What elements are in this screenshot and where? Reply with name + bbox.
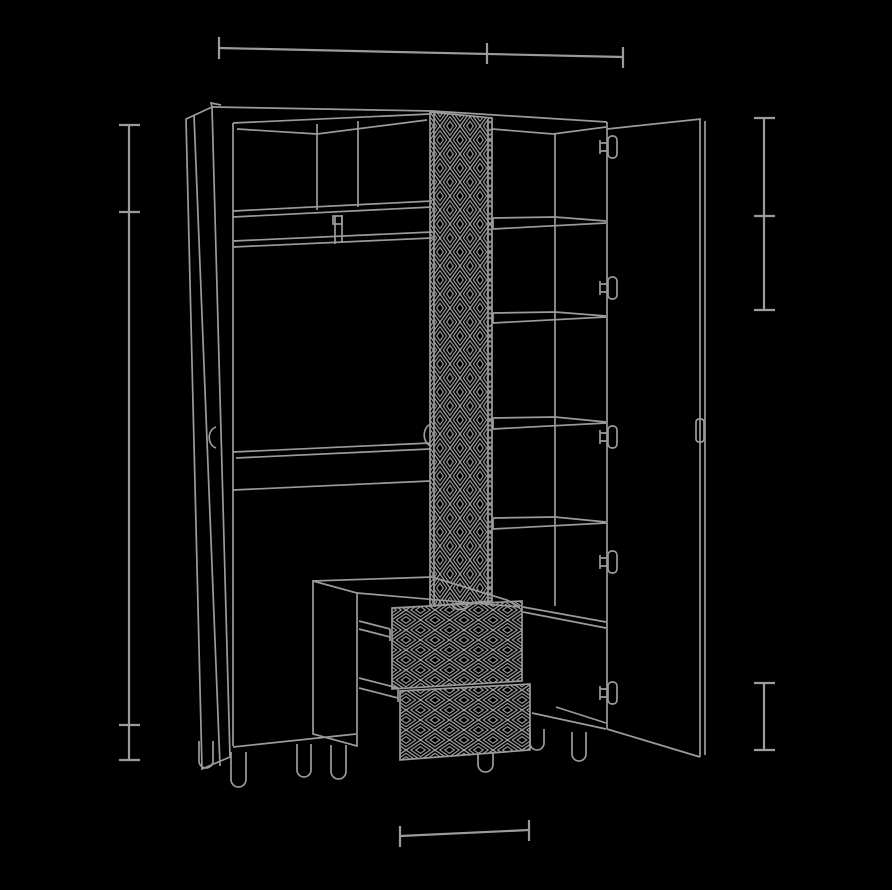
wardrobe [186,103,705,787]
shelf-3 [493,417,606,429]
leg [478,753,493,772]
hinge-5 [600,682,617,704]
back-panel-seam [233,481,430,490]
top-width-dimension [219,37,623,68]
right-upper-height-dimension [754,118,775,310]
hinge-4 [600,551,617,573]
leg [231,752,246,787]
left-door-handle [209,427,216,448]
bottom-drawer-width-dimension [400,820,529,847]
left-door-closed [186,103,230,769]
left-height-dimension [119,125,140,760]
right-door-open [600,119,705,757]
wardrobe-technical-drawing [0,0,892,890]
top-drawer-front [392,601,522,689]
hinge-1 [600,136,617,158]
shelf-4 [493,517,606,529]
top-cubby-row [233,121,432,217]
wardrobe-diagram-stage [0,0,892,890]
leg [530,729,544,750]
leg [572,732,586,761]
shelf-1 [493,217,606,229]
door-top-edge [607,119,701,129]
hanging-section [233,443,430,490]
leg [331,745,346,779]
bottom-drawer-front [400,684,530,760]
hinge-3 [600,426,617,448]
door-bottom-edge [607,729,700,757]
hinge-2 [600,277,617,299]
leg [297,744,311,777]
drawer-unit [313,577,530,760]
shelf-5 [523,607,606,628]
shelf-2 [493,312,606,323]
shelf-column-bottom [532,707,606,729]
cubby-shelf-front [233,201,432,211]
accessory-band [233,215,432,247]
center-pattern-panel [424,112,492,606]
right-lower-leg-height-dimension [754,683,775,750]
drawer-box-left-face [313,581,357,746]
